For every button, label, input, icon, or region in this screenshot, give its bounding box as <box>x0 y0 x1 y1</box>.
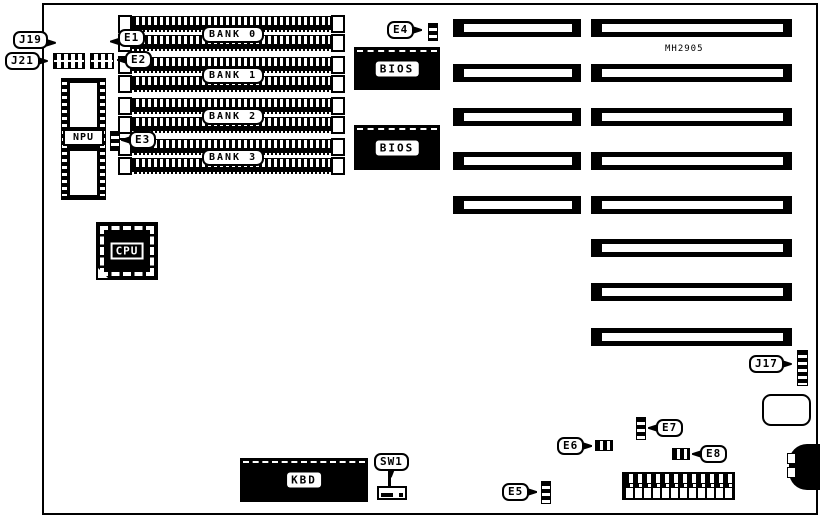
callout-e1: E1 <box>118 29 145 47</box>
jumper-e5 <box>541 481 551 504</box>
power-pins-bottom <box>624 487 733 498</box>
isa-slot-long <box>591 152 792 170</box>
jumper-e3 <box>110 131 120 151</box>
callout-e8: E8 <box>700 445 727 463</box>
jumper-block-e1-e2 <box>90 53 114 69</box>
jumper-e7 <box>636 417 646 440</box>
sw1-switch <box>377 486 407 500</box>
simm-bar <box>132 168 331 174</box>
bios-chip-top: BIOS <box>354 47 440 90</box>
simm-pins <box>132 57 331 67</box>
isa-slot-short <box>453 196 581 214</box>
power-connector <box>622 472 735 500</box>
simm-bar <box>132 45 331 51</box>
isa-slot-long <box>591 283 792 301</box>
callout-e6-label: E6 <box>563 439 578 452</box>
npu-window-bottom <box>70 151 97 195</box>
simm-pins <box>132 16 331 26</box>
jumper-block-j19-j21 <box>53 53 85 69</box>
keyboard-din-connector <box>789 444 820 490</box>
callout-e6: E6 <box>557 437 584 455</box>
isa-slot-long <box>591 196 792 214</box>
isa-slot-long <box>591 19 792 37</box>
callout-e2-label: E2 <box>131 53 146 66</box>
bios-chip-bottom: BIOS <box>354 125 440 170</box>
npu-label: NPU <box>63 129 104 146</box>
callout-e4: E4 <box>387 21 414 39</box>
callout-j21-label: J21 <box>11 54 34 67</box>
callout-sw1: SW1 <box>374 453 409 471</box>
callout-e2: E2 <box>125 51 152 69</box>
callout-sw1-label: SW1 <box>380 455 403 468</box>
isa-slot-long <box>591 108 792 126</box>
bank-1-label: BANK 1 <box>202 67 264 84</box>
isa-slot-long <box>591 328 792 346</box>
callout-e5: E5 <box>502 483 529 501</box>
bios-bottom-label: BIOS <box>376 140 419 155</box>
battery-outline <box>762 394 811 426</box>
bank-2-label: BANK 2 <box>202 108 264 125</box>
kbd-label: KBD <box>287 473 321 488</box>
isa-slot-short <box>453 152 581 170</box>
npu-socket: NPU <box>61 78 106 200</box>
jumper-e8 <box>672 448 690 460</box>
callout-j17-label: J17 <box>755 357 778 370</box>
isa-slot-long <box>591 239 792 257</box>
callout-j19: J19 <box>13 31 48 49</box>
simm-bar <box>132 86 331 92</box>
motherboard-diagram: BANK 0 BANK 1 BANK 2 BANK 3 J19 J21 E1 E… <box>0 0 824 520</box>
callout-e8-label: E8 <box>706 447 721 460</box>
callout-j21: J21 <box>5 52 40 70</box>
callout-e3-label: E3 <box>135 133 150 146</box>
jumper-j17 <box>797 350 808 386</box>
simm-pins <box>132 98 331 108</box>
cpu-socket: CPU <box>96 222 158 280</box>
callout-e3: E3 <box>129 131 156 149</box>
simm-bar <box>132 127 331 133</box>
power-pins-top <box>624 474 733 484</box>
npu-window-top <box>70 83 97 127</box>
jumper-e6 <box>595 440 613 451</box>
cpu-label: CPU <box>111 243 144 260</box>
bios-top-label: BIOS <box>376 61 419 76</box>
isa-slot-short <box>453 64 581 82</box>
callout-e7-label: E7 <box>662 421 677 434</box>
isa-slot-short <box>453 108 581 126</box>
model-label: MH2905 <box>665 44 704 54</box>
callout-j19-label: J19 <box>19 33 42 46</box>
callout-e4-label: E4 <box>393 23 408 36</box>
isa-slot-long <box>591 64 792 82</box>
isa-slot-short <box>453 19 581 37</box>
callout-j17: J17 <box>749 355 784 373</box>
simm-pins <box>132 139 331 149</box>
callout-e7: E7 <box>656 419 683 437</box>
callout-e5-label: E5 <box>508 485 523 498</box>
jumper-e4 <box>428 23 438 41</box>
kbd-chip: KBD <box>240 458 368 502</box>
bank-3-label: BANK 3 <box>202 149 264 166</box>
bank-0-label: BANK 0 <box>202 26 264 43</box>
callout-e1-label: E1 <box>124 31 139 44</box>
